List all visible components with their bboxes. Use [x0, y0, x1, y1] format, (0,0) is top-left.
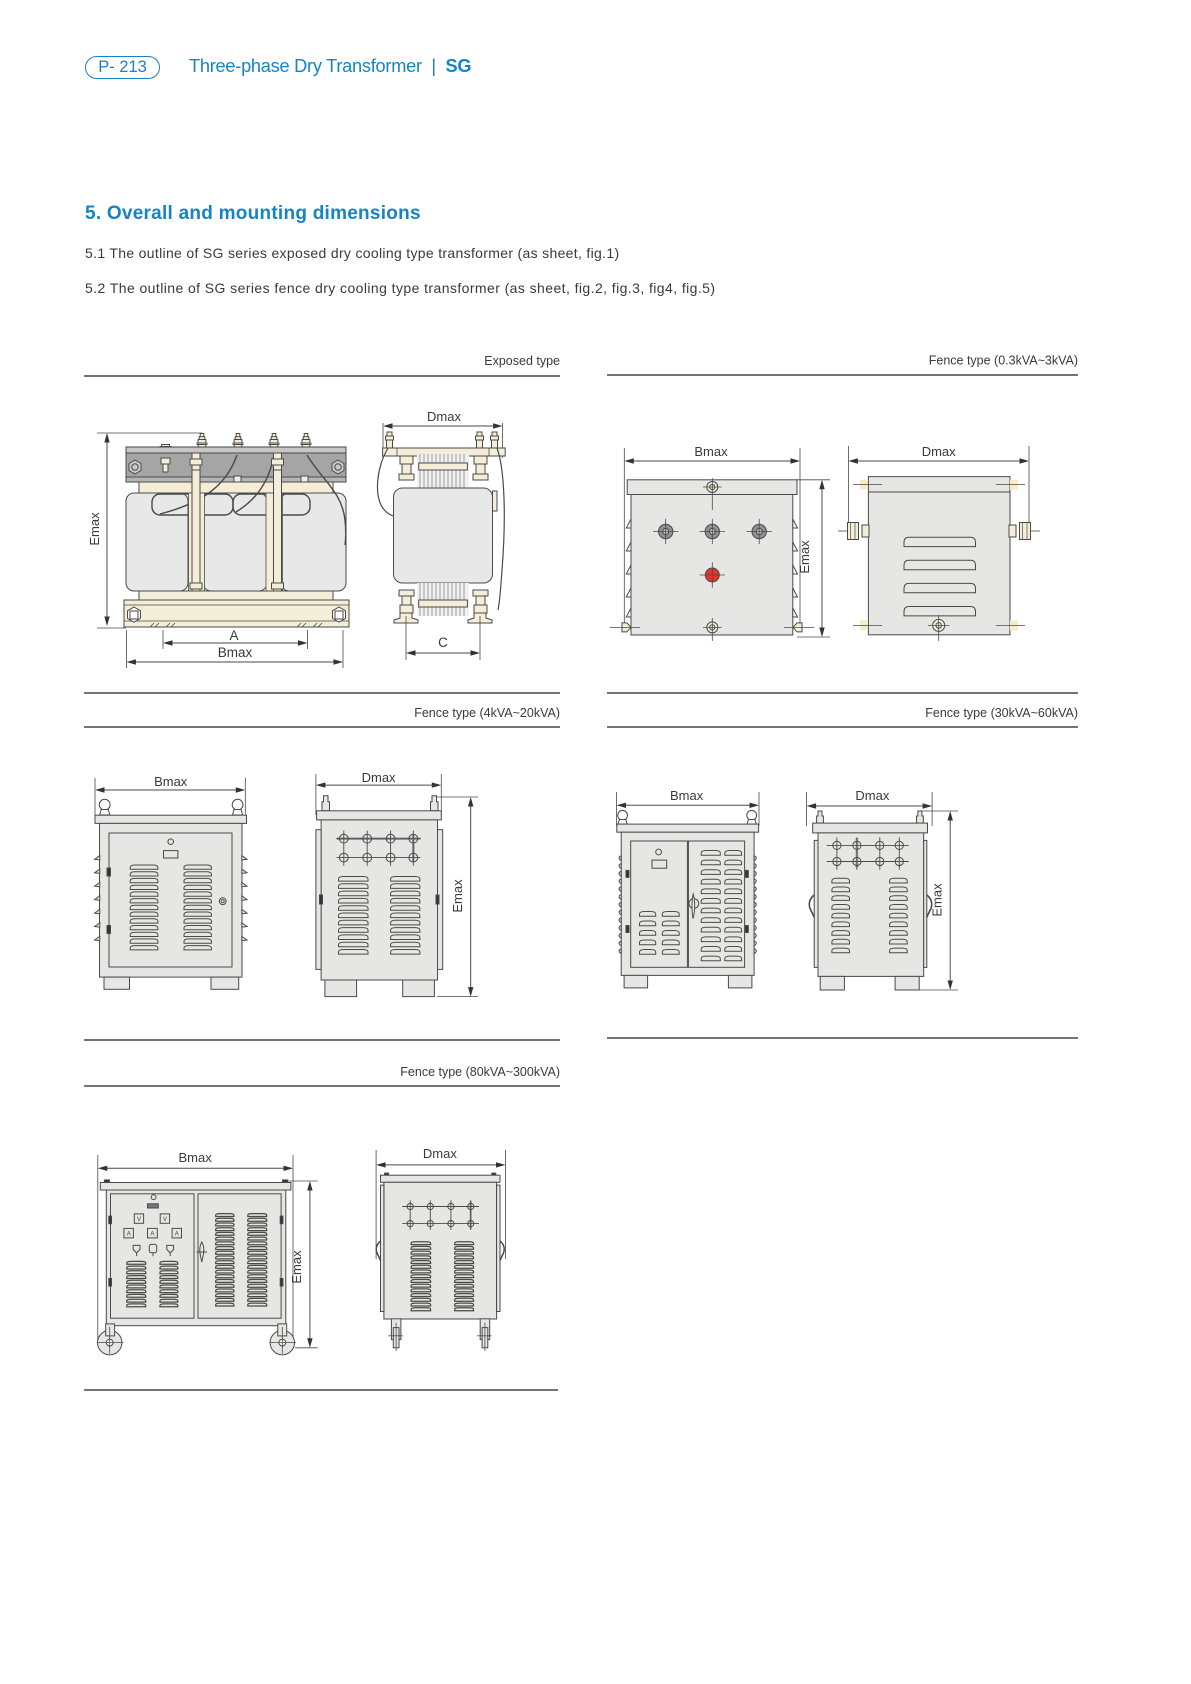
- svg-text:A: A: [127, 1232, 131, 1238]
- svg-text:Fence type (80kVA~300kVA): Fence type (80kVA~300kVA): [400, 1065, 560, 1079]
- svg-text:Dmax: Dmax: [922, 444, 956, 459]
- svg-text:Emax: Emax: [930, 883, 945, 917]
- svg-text:A: A: [229, 628, 238, 643]
- svg-text:Fence type (0.3kVA~3kVA): Fence type (0.3kVA~3kVA): [929, 354, 1078, 368]
- svg-text:A: A: [175, 1232, 179, 1238]
- svg-text:Emax: Emax: [797, 540, 812, 574]
- svg-text:Fence type (4kVA~20kVA): Fence type (4kVA~20kVA): [414, 706, 560, 720]
- svg-text:Dmax: Dmax: [362, 770, 396, 785]
- svg-text:Fence type (30kVA~60kVA): Fence type (30kVA~60kVA): [925, 706, 1078, 720]
- svg-text:Dmax: Dmax: [427, 409, 461, 424]
- svg-text:V: V: [163, 1217, 167, 1223]
- svg-text:Dmax: Dmax: [423, 1146, 457, 1161]
- svg-text:Emax: Emax: [450, 879, 465, 913]
- svg-text:Bmax: Bmax: [670, 788, 704, 803]
- svg-text:Dmax: Dmax: [855, 788, 889, 803]
- svg-text:Bmax: Bmax: [218, 645, 253, 660]
- svg-text:Emax: Emax: [87, 512, 102, 546]
- svg-text:Bmax: Bmax: [154, 774, 188, 789]
- svg-text:Exposed type: Exposed type: [484, 354, 560, 368]
- svg-text:C: C: [438, 635, 448, 650]
- svg-text:Emax: Emax: [289, 1250, 304, 1284]
- svg-text:A: A: [150, 1232, 154, 1238]
- svg-text:Bmax: Bmax: [178, 1150, 212, 1165]
- svg-text:Bmax: Bmax: [694, 444, 728, 459]
- svg-text:V: V: [137, 1217, 141, 1223]
